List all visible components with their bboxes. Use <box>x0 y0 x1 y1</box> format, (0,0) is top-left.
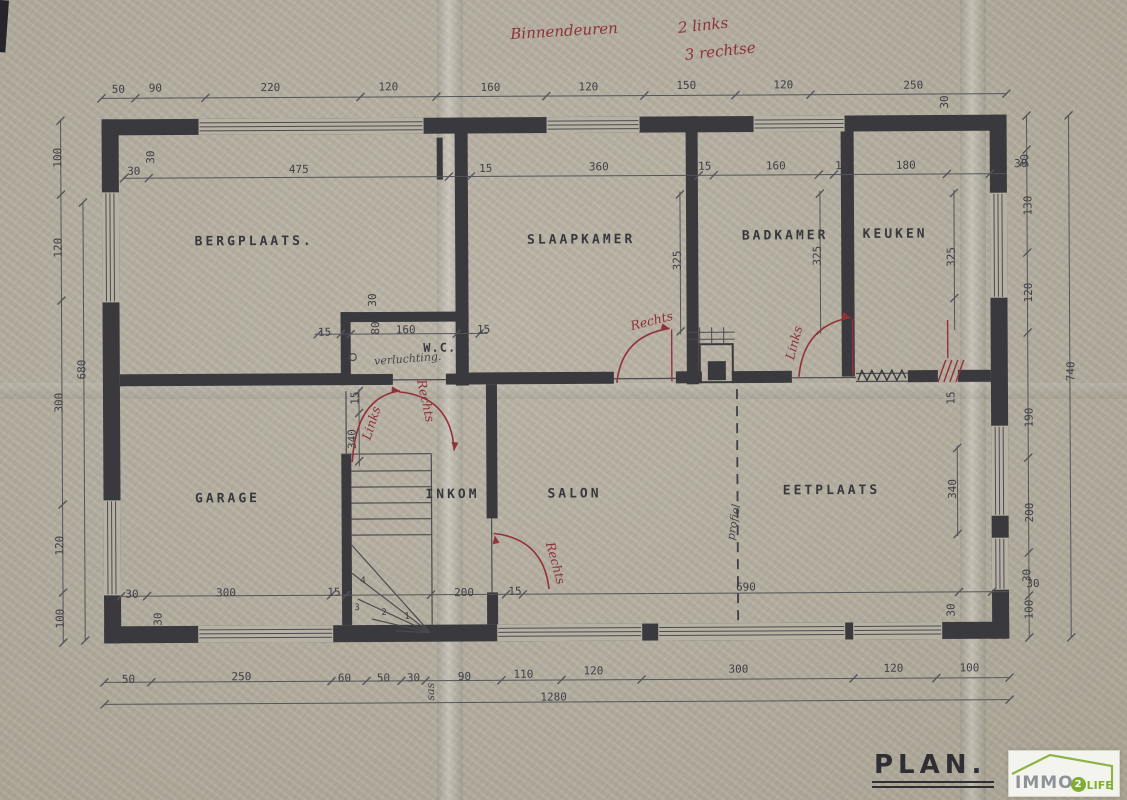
note-3-rechtse: 3 rechtse <box>684 38 757 64</box>
immo-life-logo: IMMO 2 LIFE <box>1008 750 1120 797</box>
dimension-label: 50 <box>122 673 135 686</box>
dimension-label: 100 <box>959 661 979 674</box>
dimension-label: 60 <box>338 672 351 685</box>
dimension-label: 325 <box>811 246 824 266</box>
dimension-label: 30 <box>152 612 165 625</box>
dimension-label: 180 <box>896 159 916 172</box>
dimension-label: 475 <box>289 163 309 176</box>
dimension-label: 190 <box>1023 408 1036 428</box>
dimension-label: 200 <box>454 586 474 599</box>
dimension-label: 160 <box>480 81 500 94</box>
dimension-label: 30 <box>125 588 138 601</box>
dimension-label: 15 <box>318 326 331 339</box>
dimension-label: 130 <box>1021 196 1034 216</box>
dimension-label: 30 <box>366 293 379 306</box>
dimension-label: 15 <box>835 159 848 172</box>
dimension-label: 30 <box>1018 154 1031 167</box>
door-label-links-wc: Links <box>359 404 384 441</box>
dimension-label: 30 <box>938 95 951 108</box>
door-label-rechts-slaapkamer: Rechts <box>629 308 675 333</box>
dimension-label: 680 <box>75 360 88 380</box>
dimension-label: 15 <box>508 585 521 598</box>
dimension-label: 15 <box>348 391 361 404</box>
dimension-label: 100 <box>51 148 64 168</box>
dimension-label: 15 <box>944 391 957 404</box>
note-profiel: profiel <box>724 503 743 541</box>
room-label-eetplaats: EETPLAATS <box>783 483 881 499</box>
dimension-label: 120 <box>378 80 398 93</box>
dimension-label: 30 <box>1026 577 1039 590</box>
plan-content: Binnendeuren2 links3 rechtseBERGPLAATS.S… <box>0 0 1127 800</box>
logo-brand: IMMO <box>1015 775 1074 792</box>
room-label-inkom: INKOM <box>425 487 479 502</box>
dimension-label: 30 <box>144 150 157 163</box>
dimension-label: 220 <box>260 81 280 94</box>
dimension-label: 340 <box>346 429 359 449</box>
dimension-label: 360 <box>589 160 609 173</box>
dimension-label: 250 <box>903 79 923 92</box>
logo-suffix: LIFE <box>1087 779 1113 792</box>
dimension-label: 90 <box>458 670 471 683</box>
dimension-label: 120 <box>52 238 65 258</box>
dimension-label: 100 <box>54 609 67 629</box>
room-label-badkamer: BADKAMER <box>742 228 829 243</box>
dimension-label: 15 <box>698 160 711 173</box>
dimension-label: 325 <box>945 247 958 267</box>
floorplan-photo: Binnendeuren2 links3 rechtseBERGPLAATS.S… <box>0 0 1127 800</box>
stair-number: 1 <box>404 612 409 622</box>
room-label-bergplaats: BERGPLAATS. <box>195 234 314 250</box>
room-label-slaapkamer: SLAAPKAMER <box>527 232 635 248</box>
dimension-label: 325 <box>671 250 684 270</box>
dimension-label: 30 <box>945 603 958 616</box>
dimension-label: 15 <box>327 586 340 599</box>
dimension-label: 30 <box>1014 157 1027 170</box>
plan-title: PLAN. <box>872 750 994 788</box>
note-binnendeuren: Binnendeuren <box>510 19 618 43</box>
dimension-label: 120 <box>773 78 793 91</box>
logo-number-badge: 2 <box>1071 777 1086 792</box>
dimension-label: 300 <box>216 586 236 599</box>
dimension-label: 1280 <box>540 690 567 703</box>
room-label-salon: SALON <box>547 486 601 501</box>
note-verluchting: verluchting. <box>374 350 442 368</box>
door-label-rechts-inkom: Rechts <box>414 378 438 424</box>
dimension-label: 50 <box>112 83 125 96</box>
note-2-links: 2 links <box>677 14 729 37</box>
dimension-label: 250 <box>231 670 251 683</box>
stair-number: 4 <box>360 576 365 586</box>
room-label-wc: W.C. <box>423 341 456 355</box>
dimension-label: 30 <box>407 671 420 684</box>
dimension-label: 15 <box>477 323 490 336</box>
dimension-label: 740 <box>1064 361 1077 381</box>
dimension-label: 690 <box>736 580 756 593</box>
labels-layer: Binnendeuren2 links3 rechtseBERGPLAATS.S… <box>0 0 1127 800</box>
dimension-label: 120 <box>583 664 603 677</box>
door-label-rechts-salon: Rechts <box>543 540 569 586</box>
stair-number: 3 <box>354 603 359 613</box>
dimension-label: 150 <box>676 79 696 92</box>
room-label-keuken: KEUKEN <box>863 227 928 242</box>
dimension-label: 50 <box>377 671 390 684</box>
dimension-label: 100 <box>1023 600 1036 620</box>
dimension-label: 200 <box>1023 503 1036 523</box>
dimension-label: 160 <box>766 159 786 172</box>
door-label-links-keuken: Links <box>782 324 805 361</box>
dimension-label: 300 <box>52 393 65 413</box>
dimension-label: 90 <box>149 82 162 95</box>
dimension-label: 340 <box>946 479 959 499</box>
dimension-label: 30 <box>1020 569 1033 582</box>
note-sas: sas <box>424 683 437 701</box>
plan-title-text: PLAN. <box>874 750 986 780</box>
dimension-label: 80 <box>369 321 382 334</box>
dimension-label: 120 <box>53 536 66 556</box>
dimension-label: 120 <box>578 80 598 93</box>
room-label-garage: GARAGE <box>195 491 260 506</box>
logo-text: IMMO 2 LIFE <box>1015 775 1113 792</box>
stair-number: 2 <box>381 608 386 618</box>
dimension-label: 120 <box>1022 283 1035 303</box>
dimension-label: 120 <box>883 662 903 675</box>
dimension-label: 110 <box>513 668 533 681</box>
dimension-label: 15 <box>479 162 492 175</box>
dimension-label: 160 <box>396 323 416 336</box>
dimension-label: 300 <box>728 663 748 676</box>
dimension-label: 30 <box>127 165 140 178</box>
